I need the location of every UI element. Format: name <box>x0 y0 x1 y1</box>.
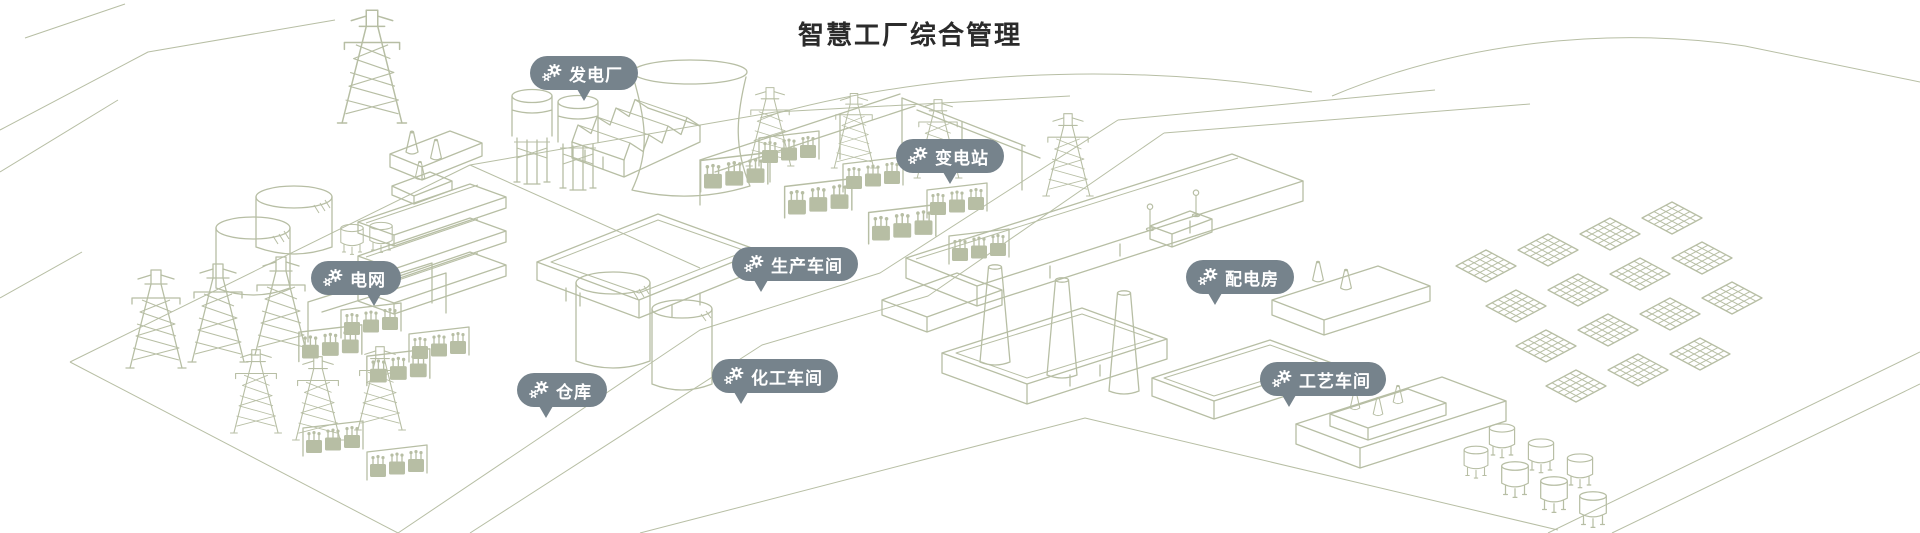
facility-label-production-workshop[interactable]: 生产车间 <box>732 247 858 281</box>
facility-label-distribution-room[interactable]: 配电房 <box>1186 260 1294 294</box>
page-title: 智慧工厂综合管理 <box>798 15 1022 52</box>
gears-icon <box>542 64 562 82</box>
facility-label-text: 配电房 <box>1225 265 1279 290</box>
tall-transmission-tower <box>338 10 407 123</box>
gears-icon <box>529 381 549 399</box>
facility-label-warehouse[interactable]: 仓库 <box>517 373 607 407</box>
facility-label-text: 电网 <box>350 266 386 291</box>
transmission-towers-left <box>126 257 311 368</box>
facility-label-text: 发电厂 <box>569 61 623 86</box>
facility-label-chemical-workshop[interactable]: 化工车间 <box>712 359 838 393</box>
gears-icon <box>724 367 744 385</box>
label-pointer <box>1282 395 1296 407</box>
facility-label-text: 化工车间 <box>751 364 823 389</box>
facility-label-text: 仓库 <box>556 378 592 403</box>
gears-icon <box>1272 370 1292 388</box>
hopper-tanks-right <box>1464 424 1606 527</box>
label-pointer <box>367 294 381 306</box>
label-pointer <box>754 280 768 292</box>
power-grid-transformer-yard <box>299 263 469 480</box>
facility-label-text: 生产车间 <box>771 252 843 277</box>
substation-yard <box>700 88 1093 264</box>
label-pointer <box>734 392 748 404</box>
chemical-tanks <box>576 272 712 390</box>
factory-illustration <box>0 0 1920 533</box>
facility-label-power-plant[interactable]: 发电厂 <box>530 56 638 90</box>
solar-panel-field <box>1456 202 1762 402</box>
gears-icon <box>744 255 764 273</box>
facility-label-process-workshop[interactable]: 工艺车间 <box>1260 362 1386 396</box>
facility-label-power-grid[interactable]: 电网 <box>311 261 401 295</box>
facility-label-text: 工艺车间 <box>1299 367 1371 392</box>
label-pointer <box>577 89 591 101</box>
label-pointer <box>943 172 957 184</box>
label-pointer <box>539 406 553 418</box>
sawtooth-factory <box>572 100 700 178</box>
gears-icon <box>1198 268 1218 286</box>
process-workshop-buildings <box>1152 340 1506 468</box>
gears-icon <box>908 147 928 165</box>
facility-label-text: 变电站 <box>935 144 989 169</box>
facility-label-substation[interactable]: 变电站 <box>896 139 1004 173</box>
label-pointer <box>1208 293 1222 305</box>
production-hall <box>537 214 760 318</box>
gears-icon <box>323 269 343 287</box>
